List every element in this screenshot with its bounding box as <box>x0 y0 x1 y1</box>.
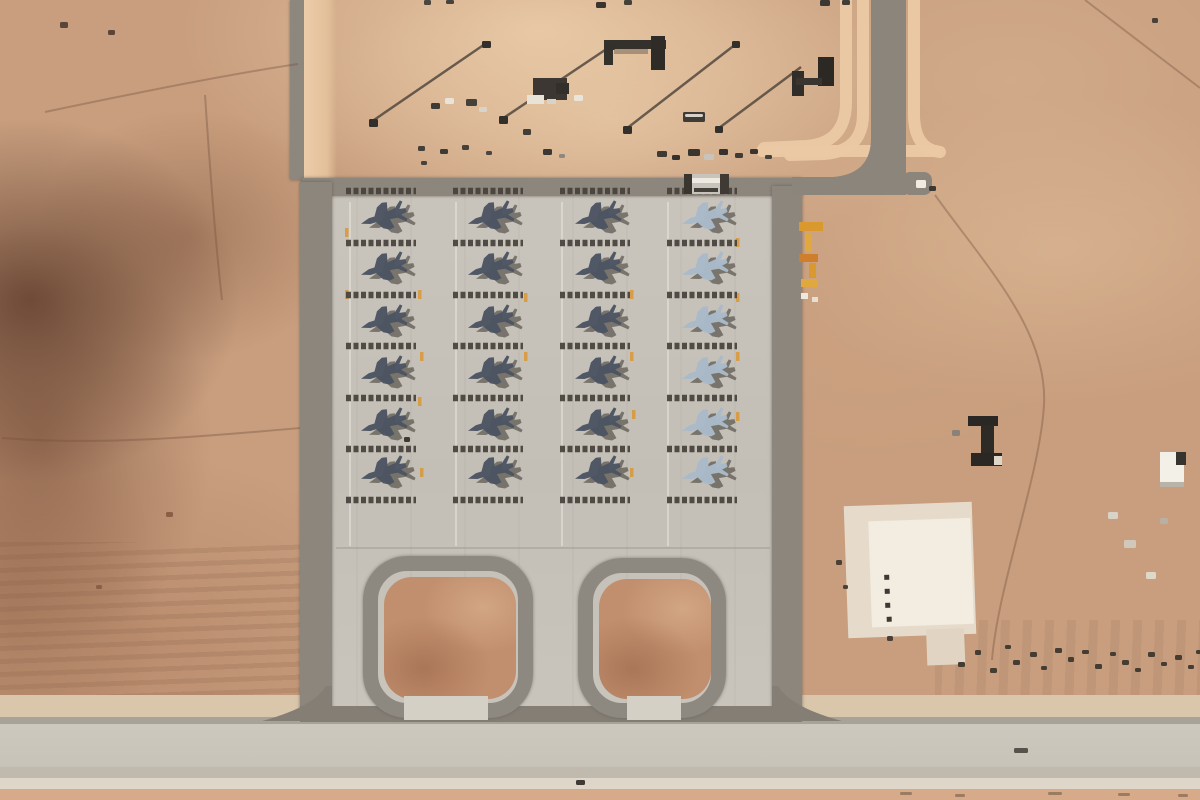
access-road-north <box>290 0 304 180</box>
runway-marking-band <box>0 778 1200 789</box>
access-road-north-berm <box>304 0 337 179</box>
runway-strip <box>0 789 1200 800</box>
sand-island-right <box>599 579 711 699</box>
runway-surface <box>0 724 1200 767</box>
apron-taxiway-edge-left <box>300 182 332 712</box>
island-concrete-tab-left <box>404 696 488 720</box>
apron-taxiway-edge-top <box>302 178 802 196</box>
satellite-image-airbase <box>0 0 1200 800</box>
apron-taxiway-edge-right <box>772 186 802 712</box>
apron-taxiway-edge-bottom <box>300 706 802 722</box>
island-concrete-tab-right <box>627 696 681 720</box>
graded-dirt-striations <box>0 542 306 702</box>
sand-island-left <box>384 577 516 699</box>
runway-band <box>0 767 1200 778</box>
